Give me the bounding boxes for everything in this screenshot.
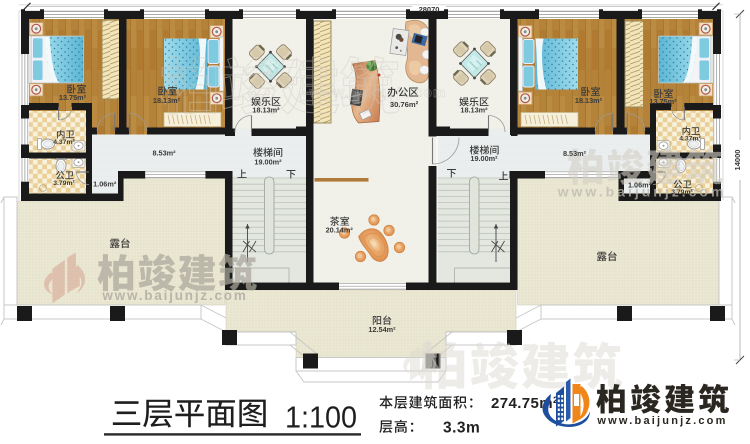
svg-text:30.76m²: 30.76m² bbox=[390, 100, 419, 109]
svg-text:1.06m²: 1.06m² bbox=[93, 180, 117, 189]
svg-text:3.3m: 3.3m bbox=[443, 419, 480, 436]
svg-text:19.00m²: 19.00m² bbox=[254, 158, 282, 167]
svg-text:1:100: 1:100 bbox=[285, 401, 357, 435]
svg-text:3.79m²: 3.79m² bbox=[671, 189, 693, 196]
svg-text:4.37m²: 4.37m² bbox=[679, 136, 701, 143]
svg-text:28070: 28070 bbox=[419, 5, 440, 14]
svg-text:18.13m²: 18.13m² bbox=[252, 105, 280, 114]
svg-text:8.53m²: 8.53m² bbox=[152, 149, 176, 158]
svg-text:3.79m²: 3.79m² bbox=[53, 180, 75, 187]
svg-text:8.53m²: 8.53m² bbox=[563, 149, 587, 158]
svg-text:4.37m²: 4.37m² bbox=[53, 139, 75, 146]
svg-text:13.75m²: 13.75m² bbox=[649, 97, 677, 106]
svg-text:www.baijunjz.com: www.baijunjz.com bbox=[596, 415, 727, 427]
svg-text:14000: 14000 bbox=[733, 150, 742, 171]
svg-text:www.baijunjz.com: www.baijunjz.com bbox=[101, 288, 247, 303]
svg-text:13.75m²: 13.75m² bbox=[59, 93, 87, 102]
svg-text:20.14m²: 20.14m² bbox=[326, 225, 354, 234]
svg-text:12.54m²: 12.54m² bbox=[368, 325, 396, 334]
svg-text:18.13m²: 18.13m² bbox=[460, 106, 488, 115]
svg-text:18.13m²: 18.13m² bbox=[153, 96, 181, 105]
svg-text:1.06m²: 1.06m² bbox=[628, 181, 652, 190]
svg-text:www.baijunjz.com: www.baijunjz.com bbox=[309, 84, 447, 100]
svg-text:19.00m²: 19.00m² bbox=[470, 154, 498, 163]
svg-text:18.13m²: 18.13m² bbox=[575, 96, 603, 105]
